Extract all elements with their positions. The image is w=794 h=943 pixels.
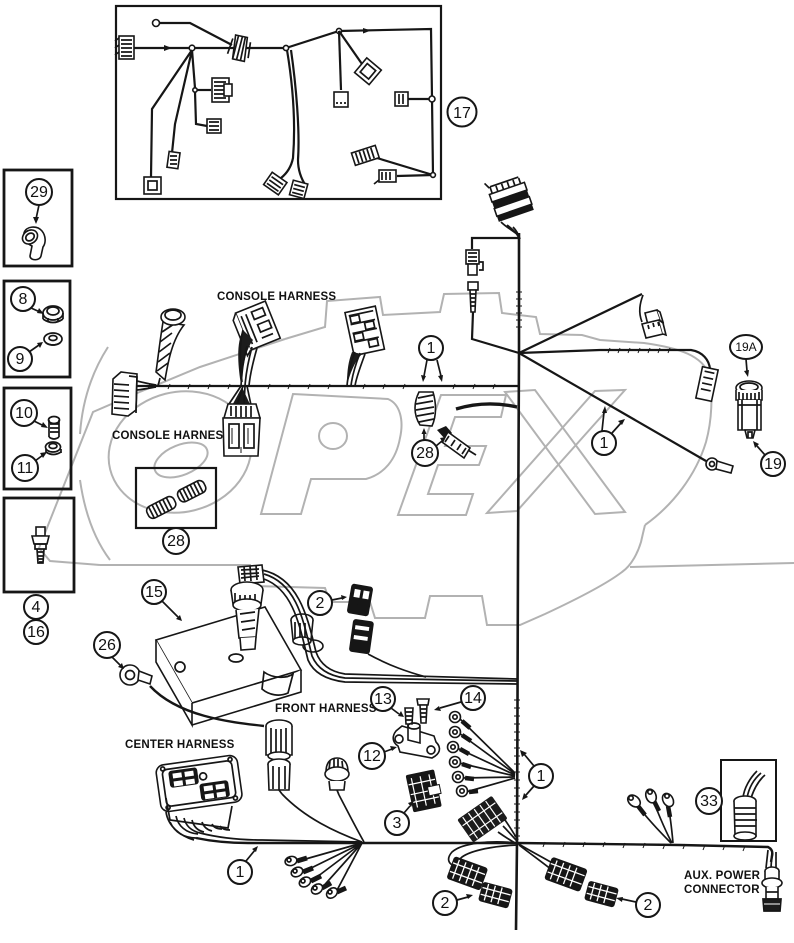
svg-text:8: 8 — [19, 291, 28, 308]
svg-text:2: 2 — [316, 595, 325, 612]
svg-text:1: 1 — [600, 435, 609, 452]
svg-text:CONSOLE HARNESS: CONSOLE HARNESS — [112, 430, 231, 442]
svg-text:2: 2 — [644, 897, 653, 914]
svg-text:28: 28 — [416, 445, 434, 462]
svg-text:9: 9 — [16, 351, 25, 368]
svg-text:CONSOLE HARNESS: CONSOLE HARNESS — [217, 291, 336, 303]
svg-text:33: 33 — [700, 793, 718, 810]
svg-text:14: 14 — [464, 690, 482, 707]
svg-text:1: 1 — [427, 340, 436, 357]
svg-text:1: 1 — [537, 768, 546, 785]
svg-text:4: 4 — [32, 599, 41, 616]
svg-text:2: 2 — [441, 895, 450, 912]
svg-text:19A: 19A — [735, 340, 756, 354]
svg-text:1: 1 — [236, 864, 245, 881]
svg-text:29: 29 — [30, 184, 48, 201]
svg-text:19: 19 — [764, 456, 782, 473]
svg-text:16: 16 — [27, 624, 45, 641]
svg-text:15: 15 — [145, 584, 163, 601]
svg-text:11: 11 — [17, 460, 34, 477]
svg-text:10: 10 — [15, 405, 33, 422]
svg-text:AUX. POWER: AUX. POWER — [684, 870, 761, 882]
svg-text:17: 17 — [453, 105, 471, 122]
svg-text:13: 13 — [374, 691, 392, 708]
svg-text:FRONT HARNESS: FRONT HARNESS — [275, 703, 377, 715]
svg-text:CENTER HARNESS: CENTER HARNESS — [125, 739, 235, 751]
svg-text:CONNECTOR: CONNECTOR — [684, 884, 760, 896]
svg-text:12: 12 — [363, 748, 381, 765]
svg-text:26: 26 — [98, 637, 116, 654]
svg-text:3: 3 — [393, 815, 402, 832]
svg-text:28: 28 — [167, 533, 185, 550]
